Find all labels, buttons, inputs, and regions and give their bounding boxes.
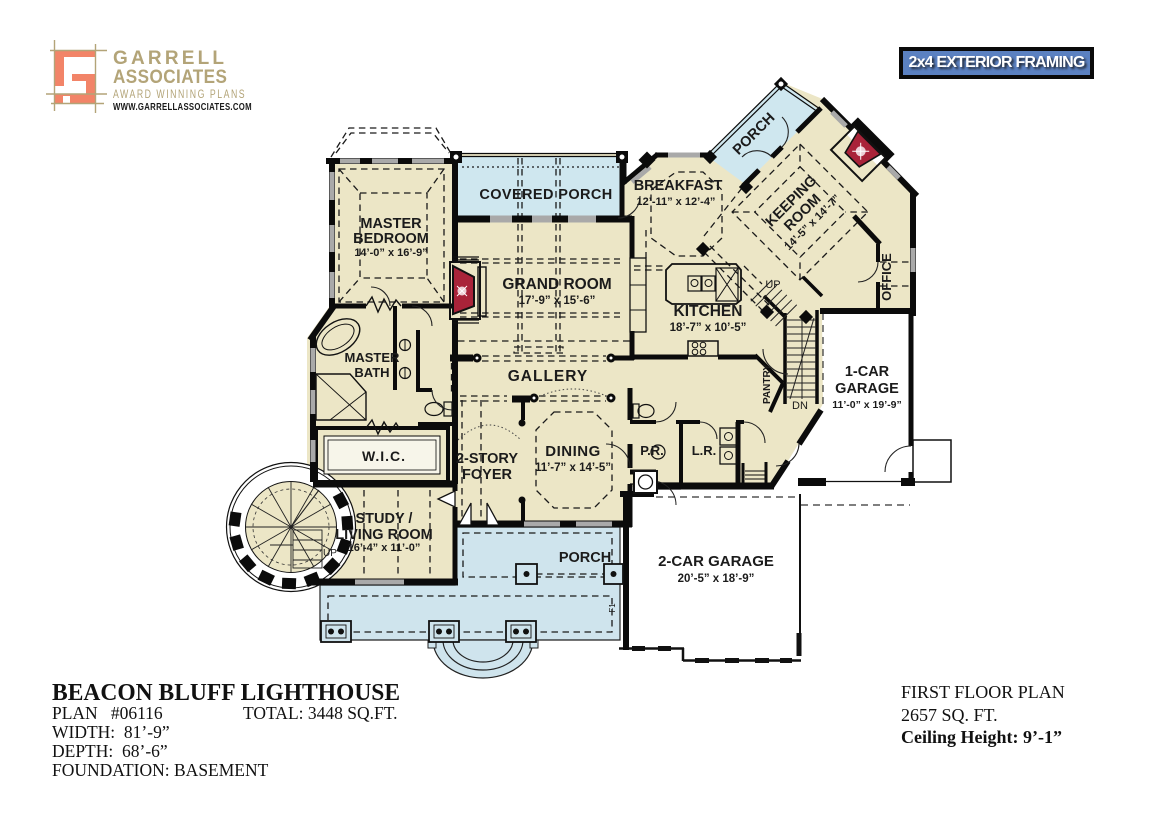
svg-text:F1: F1 [608, 603, 617, 613]
svg-text:LIVING ROOM: LIVING ROOM [335, 527, 432, 543]
svg-text:P.R.: P.R. [640, 443, 664, 458]
svg-text:DINING: DINING [545, 443, 601, 460]
svg-text:BEDROOM: BEDROOM [353, 231, 429, 247]
svg-text:1-CAR: 1-CAR [845, 364, 890, 380]
svg-text:PORCH: PORCH [559, 550, 611, 566]
svg-text:11’-0” x 19’-9”: 11’-0” x 19’-9” [832, 399, 901, 411]
svg-text:2-STORY: 2-STORY [456, 451, 518, 467]
svg-text:GALLERY: GALLERY [508, 368, 588, 385]
svg-text:COVERED PORCH: COVERED PORCH [479, 187, 612, 203]
svg-text:17’-9” x 15’-6”: 17’-9” x 15’-6” [519, 295, 596, 307]
svg-text:12’-11” x 12’-4”: 12’-11” x 12’-4” [637, 196, 716, 208]
svg-text:L.R.: L.R. [692, 443, 717, 458]
svg-text:PANTRY: PANTRY [762, 364, 773, 404]
svg-text:UP: UP [323, 548, 337, 559]
svg-text:UP: UP [765, 279, 780, 291]
svg-text:BATH: BATH [354, 365, 389, 380]
svg-text:MASTER: MASTER [345, 350, 401, 365]
svg-text:MASTER: MASTER [360, 216, 422, 232]
svg-text:W.I.C.: W.I.C. [362, 448, 406, 464]
svg-text:16’-4” x 11’-0”: 16’-4” x 11’-0” [348, 542, 421, 554]
svg-text:KITCHEN: KITCHEN [674, 303, 743, 320]
svg-text:FOYER: FOYER [462, 467, 512, 483]
svg-text:GRAND ROOM: GRAND ROOM [502, 276, 611, 293]
svg-text:11’-7” x 14’-5”: 11’-7” x 14’-5” [535, 462, 611, 474]
svg-text:OFFICE: OFFICE [879, 253, 894, 301]
svg-text:20’-5” x 18’-9”: 20’-5” x 18’-9” [678, 573, 755, 585]
svg-text:18’-7” x 10’-5”: 18’-7” x 10’-5” [670, 322, 747, 334]
svg-text:BREAKFAST: BREAKFAST [634, 178, 723, 194]
svg-text:GARAGE: GARAGE [835, 381, 899, 397]
svg-text:STUDY /: STUDY / [356, 511, 413, 527]
svg-text:14’-0” x 16’-9”: 14’-0” x 16’-9” [354, 247, 427, 259]
svg-text:2-CAR GARAGE: 2-CAR GARAGE [658, 553, 774, 570]
svg-text:DN: DN [792, 400, 808, 412]
